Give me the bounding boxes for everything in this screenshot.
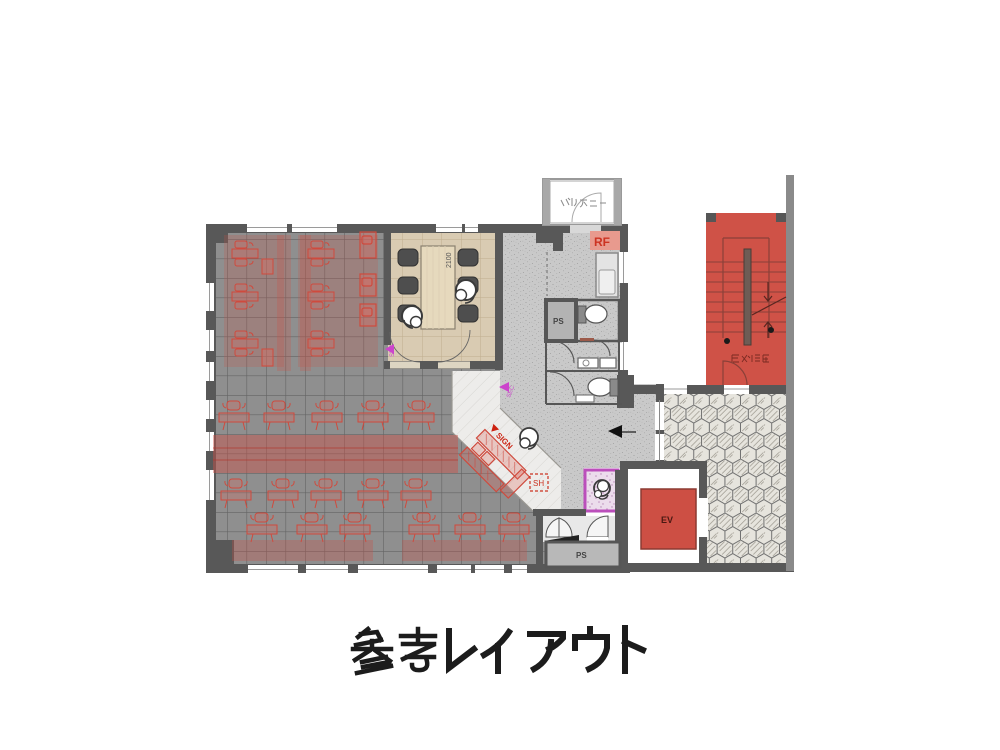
svg-text:PS: PS <box>576 551 587 560</box>
svg-text:PS: PS <box>553 317 564 326</box>
svg-text:EV: EV <box>661 515 673 525</box>
svg-text:2100: 2100 <box>446 252 453 268</box>
svg-text:RF: RF <box>594 235 610 249</box>
svg-text:SEC: SEC <box>390 344 396 357</box>
svg-text:SH: SH <box>533 479 544 488</box>
